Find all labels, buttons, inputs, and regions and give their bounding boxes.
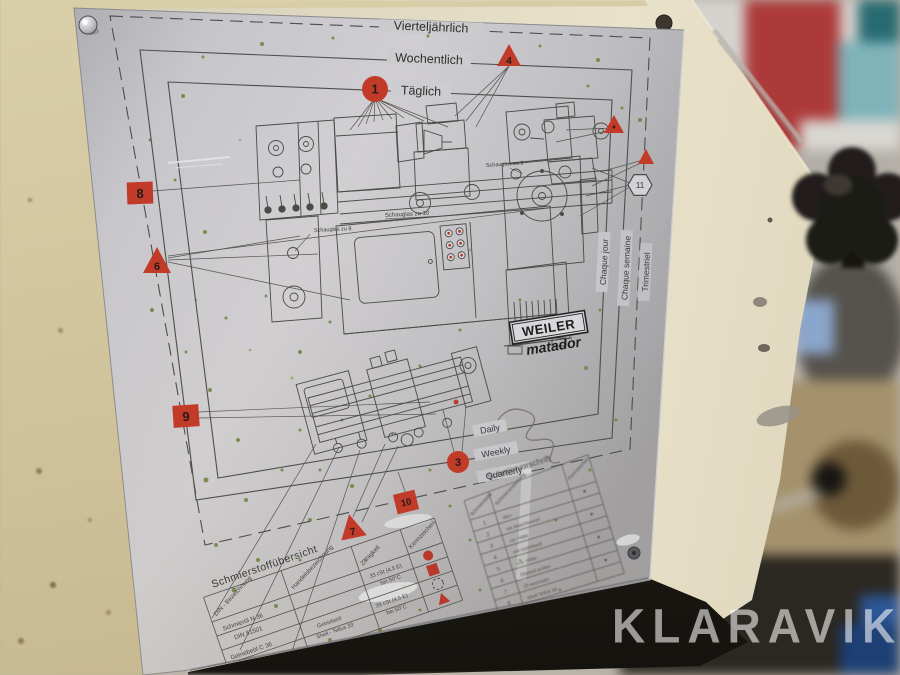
paint-scrape-streak [714, 30, 802, 142]
paint-chip [753, 297, 767, 307]
marker-8-square: 8 [127, 182, 154, 205]
svg-text:4: 4 [506, 56, 512, 67]
marker-3-circle: 3 [447, 451, 469, 473]
red-dot-mark [454, 400, 459, 405]
label-weekly-de: Wochentlich [395, 51, 463, 68]
svg-text:6: 6 [154, 261, 160, 273]
svg-text:8: 8 [136, 186, 144, 201]
paint-chip [768, 218, 773, 223]
star-grip-knob [792, 147, 900, 268]
paint-chip [758, 344, 770, 352]
label-daily-de: Täglich [401, 83, 442, 99]
rivet-top-left [79, 16, 97, 34]
watermark-text: KLARAVIK [612, 598, 900, 654]
plate-scene: Vierteljährlich Wochentlich Täglich Chaq… [0, 0, 900, 675]
marker-1-circle: 1 [362, 76, 388, 102]
paint-chip-patch [754, 402, 801, 431]
label-quarterly-fr: Trimestriel [640, 252, 652, 292]
svg-text:3: 3 [455, 457, 461, 469]
svg-text:11: 11 [636, 181, 645, 190]
marker-9-square: 9 [172, 404, 199, 428]
photo-of-lubrication-plate: Vierteljährlich Wochentlich Täglich Chaq… [0, 0, 900, 675]
marker-11-hexagon: 11 [628, 175, 652, 196]
svg-text:1: 1 [371, 82, 378, 97]
svg-text:9: 9 [182, 409, 190, 424]
